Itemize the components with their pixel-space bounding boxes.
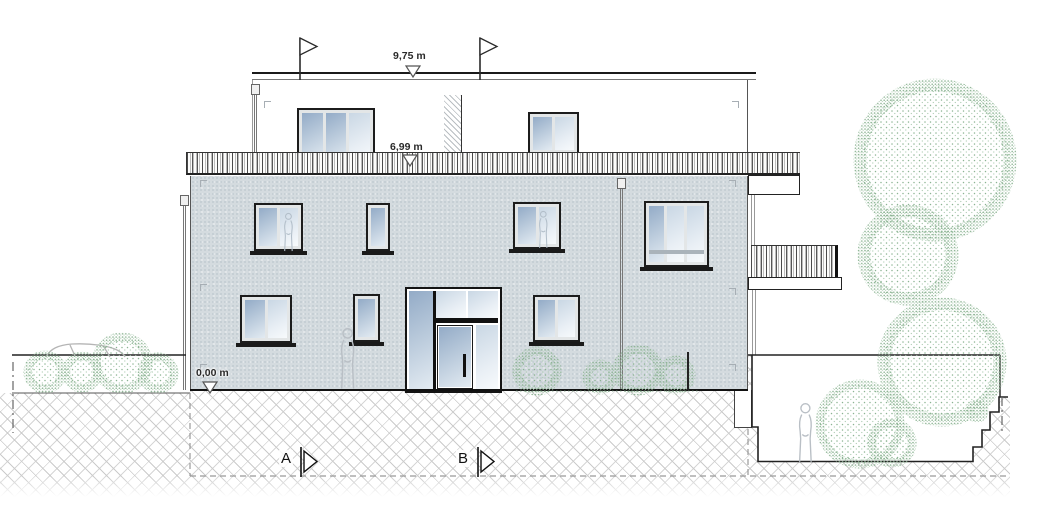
level-label-terrace: 6,99 m [390,141,423,153]
downpipe [183,206,186,390]
wall-edge [752,290,756,355]
downpipe-outlet [180,195,189,206]
corner-mark [729,180,736,187]
door-sidelight [409,291,433,389]
corner-mark [200,284,207,291]
downpipe [254,95,257,152]
basement-wall-step [734,390,752,428]
upper-window-1 [254,203,303,251]
section-marker-a-label: A [279,450,293,467]
window-sill [509,249,565,253]
ground-window-3 [533,295,580,342]
downpipe [620,189,623,390]
upper-window-2 [366,203,390,251]
entrance-door [405,287,502,393]
corner-mark [732,101,739,108]
corner-mark [729,288,736,295]
door-handle [463,354,466,377]
corner-mark [200,180,207,187]
party-wall-hatch [444,95,462,158]
terrain-left [0,355,190,393]
penthouse-window-right [528,112,579,155]
upper-window-3 [513,202,561,249]
tree [860,85,1010,235]
corner-mark [264,101,271,108]
ground-window-1 [240,295,292,343]
elevation-drawing: 9,75 m 6,99 m 0,00 m A B [0,0,1052,516]
roof-terrace-railing [186,152,800,175]
section-marker-b-label: B [456,450,470,467]
door-sidelight [476,325,498,389]
window-sill [250,251,307,255]
ground-window-2 [353,294,380,342]
window-sill [529,342,584,346]
roof-parapet [252,72,756,80]
corner-mark [729,364,736,371]
balcony-slab [748,277,842,290]
window-sill [236,343,296,347]
tree [864,211,952,299]
wall-edge [751,195,755,245]
window-sill [349,342,384,346]
window-sill [640,267,713,271]
window-sill [362,251,394,255]
downpipe-outlet [251,84,260,95]
level-label-parapet: 9,75 m [393,50,426,62]
door-leaf [437,325,473,389]
balcony-railing [751,245,838,277]
level-label-ground: 0,00 m [196,367,229,379]
balcony-slab-upper [748,175,800,195]
downpipe-outlet [617,178,626,189]
upper-window-large [644,201,709,267]
